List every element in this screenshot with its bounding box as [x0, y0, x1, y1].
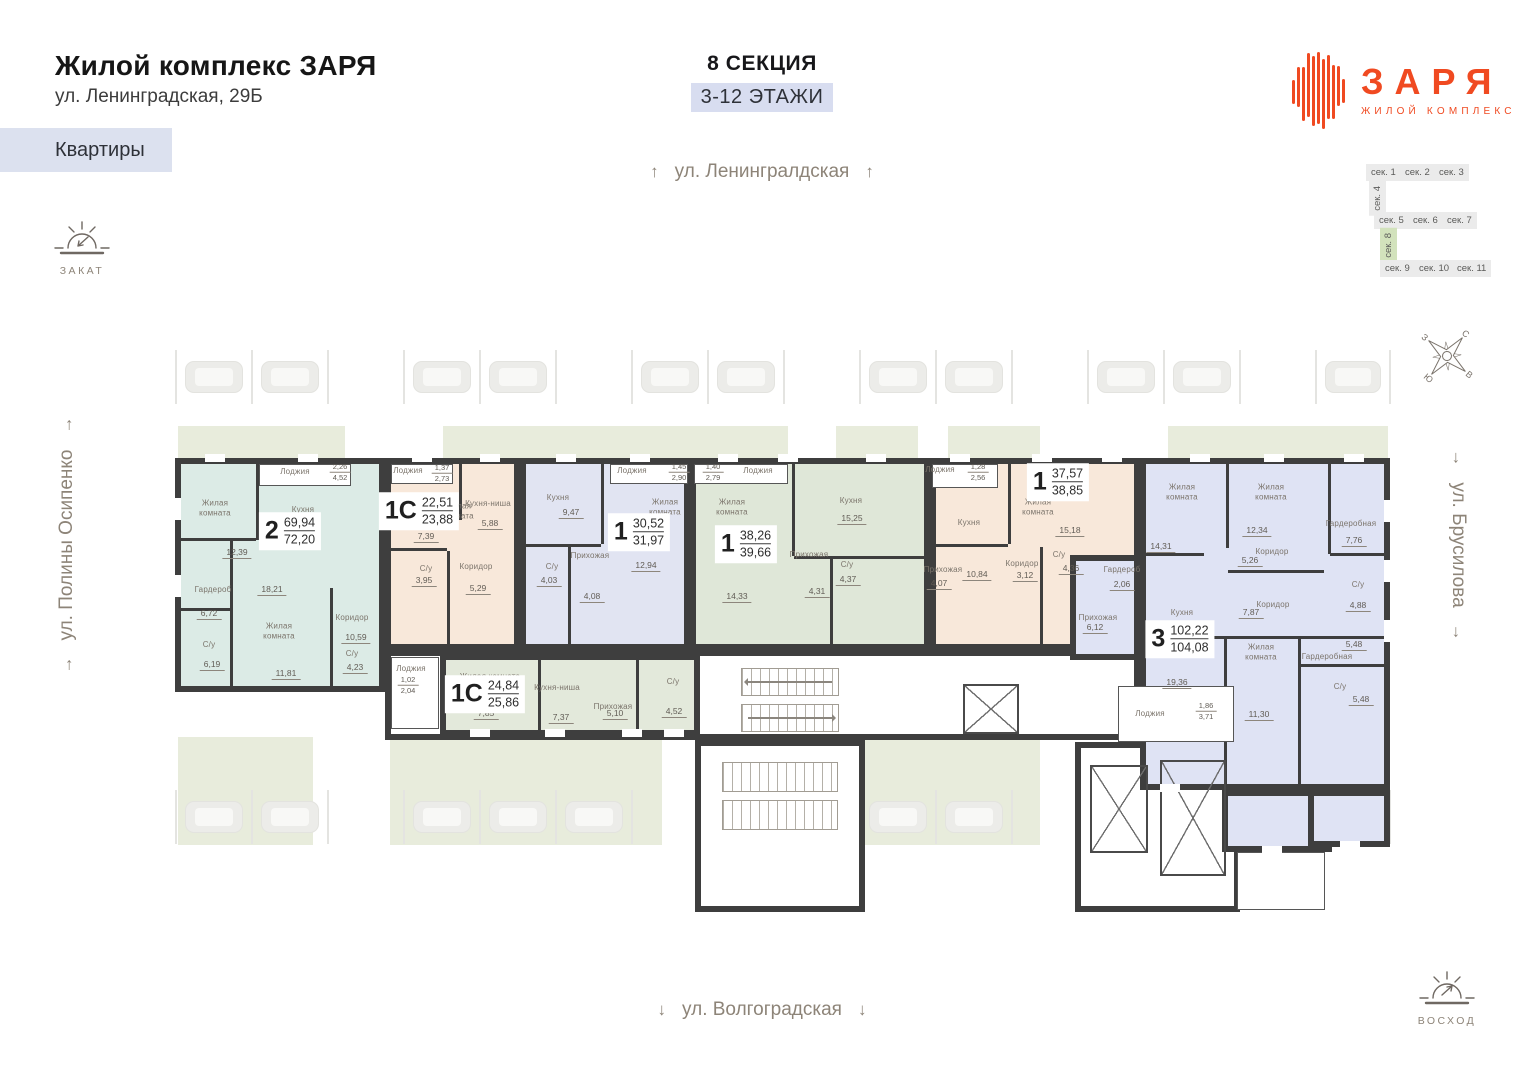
window	[545, 729, 565, 737]
apartment-type: 2	[265, 519, 279, 544]
apartment-badge-1-room-b[interactable]: 1 38,2639,66	[715, 525, 777, 563]
interior-wall	[1008, 464, 1011, 544]
area-total: 39,66	[740, 545, 771, 561]
window	[1262, 846, 1282, 854]
parking-stall	[403, 350, 479, 404]
apartment-studio-1[interactable]	[385, 458, 520, 650]
area-total: 104,08	[1170, 640, 1208, 656]
room-area: 1,402,79	[703, 462, 724, 483]
area-value: 2,56	[971, 473, 986, 482]
room-label: С/у	[667, 677, 680, 687]
interior-wall	[601, 464, 604, 544]
window	[173, 575, 181, 597]
area-value: 1,40	[703, 462, 724, 473]
car-icon	[869, 801, 927, 833]
area-living: 37,57	[1052, 465, 1083, 482]
window	[1160, 784, 1180, 792]
room-area: 4,52	[662, 706, 687, 718]
interior-wall	[230, 541, 233, 686]
interior-wall	[1040, 547, 1043, 644]
car-icon	[489, 361, 547, 393]
car-icon	[185, 361, 243, 393]
parking-stall	[1163, 350, 1239, 404]
room-area: 5,10	[603, 708, 628, 720]
room-area: 14,31	[1146, 541, 1175, 553]
room-label: С/у	[1053, 550, 1066, 560]
room-area: 4,31	[805, 586, 830, 598]
window	[470, 729, 490, 737]
room-area: 5,48	[1342, 639, 1367, 651]
car-icon	[565, 801, 623, 833]
loggia-box	[1237, 852, 1325, 910]
parking-stall	[327, 790, 403, 844]
room-area: 9,47	[559, 507, 584, 519]
stairs-arrow	[748, 681, 832, 683]
car-icon	[1097, 361, 1155, 393]
apartment-type: 1С	[451, 682, 483, 707]
area-value: 1,02	[398, 675, 419, 686]
room-area: 1,452,90	[669, 462, 690, 483]
room-area: 14,33	[722, 591, 751, 603]
window	[1102, 454, 1122, 462]
room-area: 10,59	[341, 632, 370, 644]
room-label: Коридор	[460, 562, 493, 572]
interior-wall	[538, 660, 541, 730]
interior-wall	[526, 544, 601, 547]
window	[412, 454, 432, 462]
room-label: С/у	[420, 564, 433, 574]
window	[298, 454, 318, 462]
room-area: 12,39	[222, 547, 251, 559]
parking-stall	[175, 350, 251, 404]
room-area: 4,03	[537, 575, 562, 587]
room-area: 4,37	[836, 574, 861, 586]
interior-wall	[181, 538, 256, 541]
area-living: 22,51	[422, 494, 453, 511]
area-value: 1,45	[669, 462, 690, 473]
room-area: 18,21	[257, 584, 286, 596]
area-value: 2,26	[330, 462, 351, 473]
room-area: 2,06	[1110, 579, 1135, 591]
room-label: Гардеробная	[1326, 519, 1377, 529]
window	[1384, 560, 1392, 582]
parking-stall	[935, 790, 1011, 844]
room-area: 10,84	[962, 569, 991, 581]
parking-stall	[859, 790, 935, 844]
parking-stall	[479, 790, 555, 844]
car-icon	[413, 361, 471, 393]
parking-stall	[555, 350, 631, 404]
room-area: 15,25	[837, 513, 866, 525]
interior-wall	[1300, 664, 1384, 667]
area-total: 25,86	[488, 695, 519, 711]
elevator-shaft	[1160, 760, 1226, 876]
room-area: 2,264,52	[330, 462, 351, 483]
room-label: Гардеробная	[1302, 652, 1353, 662]
area-value: 3,71	[1199, 712, 1214, 721]
interior-wall	[330, 588, 333, 686]
room-area: 5,88	[478, 518, 503, 530]
room-area: 6,72	[197, 608, 222, 620]
interior-wall	[1228, 570, 1324, 573]
room-label: Лоджия	[1135, 709, 1165, 719]
room-label: Жилая комната	[1247, 482, 1295, 501]
room-label: С/у	[203, 640, 216, 650]
floor-plan: 2 69,9472,20 1С 22,5123,88 1 30,5231,97 …	[0, 0, 1527, 1080]
interior-wall	[792, 464, 795, 556]
room-label: Гардероб	[1104, 565, 1141, 575]
parking-stall	[631, 350, 707, 404]
room-label: Кухня-ниша	[533, 683, 581, 693]
room-area: 4,36	[1059, 563, 1084, 575]
room-label: Коридор	[1006, 559, 1039, 569]
interior-wall	[1330, 553, 1384, 556]
apartment-type: 1С	[385, 499, 417, 524]
parking-stall	[403, 790, 479, 844]
interior-wall	[1226, 464, 1229, 548]
area-living: 30,52	[633, 515, 664, 532]
room-area: 5,48	[1349, 694, 1374, 706]
area-living: 38,26	[740, 527, 771, 544]
room-label: Кухня-ниша	[464, 499, 512, 509]
area-total: 72,20	[284, 532, 315, 548]
room-label: Прихожая	[571, 551, 610, 561]
room-label: Жилая комната	[1158, 482, 1206, 501]
room-area: 5,29	[466, 583, 491, 595]
room-label: Кухня	[1171, 608, 1193, 618]
room-area: 4,23	[343, 662, 368, 674]
room-label: Прихожая	[790, 550, 829, 560]
room-label: С/у	[841, 560, 854, 570]
area-value: 2,79	[706, 473, 721, 482]
parking-stall	[251, 350, 327, 404]
car-icon	[261, 801, 319, 833]
car-icon	[945, 361, 1003, 393]
window	[173, 498, 181, 520]
area-living: 24,84	[488, 677, 519, 694]
apartment-3-room[interactable]	[1308, 790, 1390, 847]
apartment-badge-1-room-c[interactable]: 1 37,5738,85	[1027, 463, 1089, 501]
room-area: 7,39	[414, 531, 439, 543]
room-label: Гардероб	[195, 585, 232, 595]
window	[664, 729, 684, 737]
window	[1344, 454, 1364, 462]
room-area: 1,282,56	[968, 462, 989, 483]
interior-wall	[1146, 553, 1204, 556]
car-icon	[945, 801, 1003, 833]
interior-wall	[1328, 464, 1331, 554]
room-label: Лоджия	[743, 466, 773, 476]
room-area: 12,94	[631, 560, 660, 572]
room-label: Кухня	[958, 518, 980, 528]
window	[630, 454, 650, 462]
room-area: 1,022,04	[398, 675, 419, 696]
interior-wall	[636, 660, 639, 730]
room-area: 3,95	[412, 575, 437, 587]
room-label: С/у	[1352, 580, 1365, 590]
car-icon	[185, 801, 243, 833]
car-icon	[641, 361, 699, 393]
room-label: Кухня	[547, 493, 569, 503]
room-area: 11,81	[272, 668, 301, 680]
window	[1032, 454, 1052, 462]
area-value: 2,04	[401, 686, 416, 695]
room-area: 5,26	[1238, 555, 1263, 567]
car-icon	[869, 361, 927, 393]
parking-stall	[1011, 350, 1087, 404]
parking-stall	[859, 350, 935, 404]
room-label: Лоджия	[396, 664, 426, 674]
area-total: 31,97	[633, 533, 664, 549]
car-icon	[413, 801, 471, 833]
room-area: 15,18	[1055, 525, 1084, 537]
room-label: Лоджия	[617, 466, 647, 476]
room-label: Кухня	[840, 496, 862, 506]
parking-row-top	[175, 350, 1391, 404]
window	[1190, 454, 1210, 462]
area-value: 1,28	[968, 462, 989, 473]
room-area: 1,372,73	[432, 463, 453, 484]
room-area: 1,863,71	[1196, 701, 1217, 722]
parking-stall	[479, 350, 555, 404]
parking-stall	[327, 350, 403, 404]
room-label: Жилая комната	[191, 498, 239, 517]
interior-wall	[568, 547, 571, 644]
car-icon	[717, 361, 775, 393]
parking-stall	[1315, 350, 1391, 404]
interior-wall	[1298, 639, 1301, 790]
room-label: Лоджия	[393, 466, 423, 476]
room-area: 4,07	[927, 578, 952, 590]
window	[1384, 500, 1392, 522]
room-area: 12,34	[1242, 525, 1271, 537]
area-value: 2,90	[672, 473, 687, 482]
area-total: 38,85	[1052, 483, 1083, 499]
window	[1384, 620, 1392, 642]
stairs-arrow	[748, 717, 832, 719]
page: Жилой комплекс ЗАРЯ ул. Ленинградская, 2…	[0, 0, 1527, 1080]
room-label: С/у	[346, 649, 359, 659]
room-area: 6,12	[1083, 622, 1108, 634]
elevator-shaft	[963, 684, 1019, 734]
apartment-type: 3	[1151, 627, 1165, 652]
apartment-badge-1-room-a[interactable]: 1 30,5231,97	[608, 513, 670, 551]
window	[622, 729, 642, 737]
interior-wall	[391, 548, 447, 551]
car-icon	[1325, 361, 1381, 393]
room-label: С/у	[546, 562, 559, 572]
parking-stall	[783, 350, 859, 404]
parking-stall	[707, 350, 783, 404]
area-value: 1,86	[1196, 701, 1217, 712]
area-living: 102,22	[1170, 622, 1208, 639]
room-area: 7,87	[1239, 607, 1264, 619]
window	[205, 454, 225, 462]
room-area: 7,37	[549, 712, 574, 724]
apartment-badge-3-room[interactable]: 3 102,22104,08	[1145, 620, 1214, 658]
parking-stall	[935, 350, 1011, 404]
window	[866, 454, 886, 462]
elevator-shaft	[1090, 765, 1148, 853]
apartment-badge-studio-2[interactable]: 1С 24,8425,86	[445, 675, 525, 713]
parking-stall	[175, 790, 251, 844]
area-value: 4,52	[333, 473, 348, 482]
room-label: Лоджия	[925, 465, 955, 475]
room-area: 4,88	[1346, 600, 1371, 612]
landscape-strip	[178, 426, 345, 458]
room-label: С/у	[1334, 682, 1347, 692]
interior-wall	[830, 559, 833, 644]
apartment-badge-2-room[interactable]: 2 69,9472,20	[259, 512, 321, 550]
room-area: 11,30	[1245, 709, 1274, 721]
parking-stall	[1087, 350, 1163, 404]
room-label: Прихожая	[924, 565, 963, 575]
room-area: 6,19	[200, 659, 225, 671]
interior-wall	[447, 551, 450, 644]
room-label: Жилая комната	[255, 621, 303, 640]
car-icon	[261, 361, 319, 393]
area-living: 69,94	[284, 514, 315, 531]
parking-stall	[555, 790, 631, 844]
room-area: 4,08	[580, 591, 605, 603]
area-value: 2,73	[435, 474, 450, 483]
window	[556, 454, 576, 462]
parking-stall	[251, 790, 327, 844]
room-label: Жилая комната	[708, 497, 756, 516]
area-total: 23,88	[422, 512, 453, 528]
apartment-type: 1	[1033, 470, 1047, 495]
stairs-flight	[722, 800, 838, 830]
apartment-type: 1	[614, 520, 628, 545]
area-value: 1,37	[432, 463, 453, 474]
apartment-badge-studio-1[interactable]: 1С 22,5123,88	[379, 492, 459, 530]
parking-stall	[1239, 350, 1315, 404]
room-label: Лоджия	[280, 467, 310, 477]
interior-wall	[936, 544, 1008, 547]
room-area: 3,12	[1013, 570, 1038, 582]
window	[1340, 841, 1360, 849]
room-area: 7,76	[1342, 535, 1367, 547]
room-label: Жилая комната	[1237, 642, 1285, 661]
window	[1264, 454, 1284, 462]
window	[480, 454, 500, 462]
car-icon	[489, 801, 547, 833]
room-label: Коридор	[336, 613, 369, 623]
apartment-type: 1	[721, 532, 735, 557]
stairs-flight	[722, 762, 838, 792]
window	[778, 454, 798, 462]
room-area: 19,36	[1162, 677, 1191, 689]
car-icon	[1173, 361, 1231, 393]
